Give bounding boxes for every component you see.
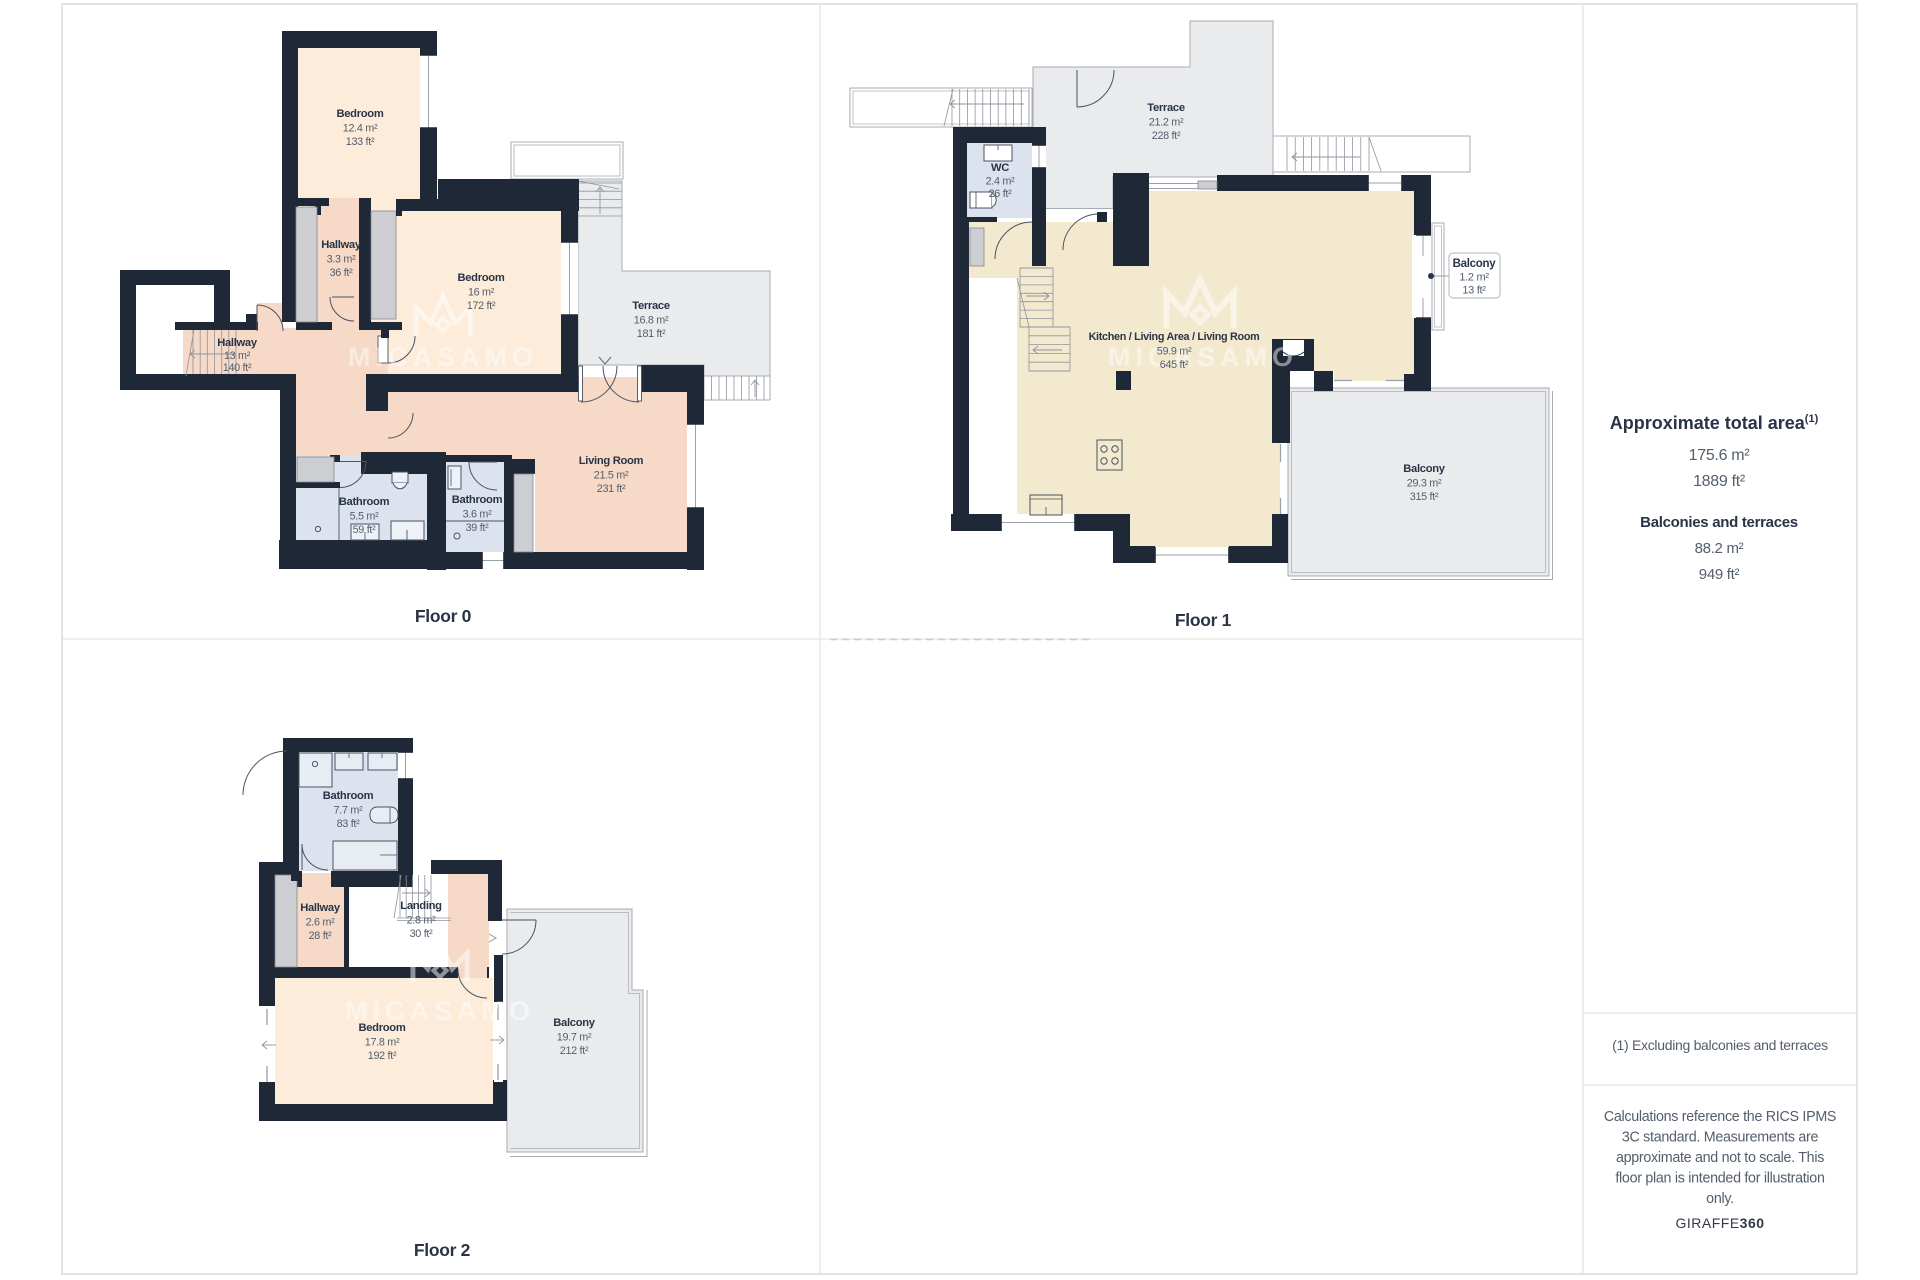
svg-text:21.2 m²: 21.2 m² (1149, 117, 1184, 129)
svg-text:Floor 2: Floor 2 (414, 1240, 471, 1260)
svg-text:Bathroom: Bathroom (323, 790, 374, 802)
svg-text:2.4 m²: 2.4 m² (986, 176, 1016, 188)
svg-text:13 m²: 13 m² (224, 350, 251, 362)
svg-text:Floor 0: Floor 0 (415, 606, 472, 626)
svg-text:13 ft²: 13 ft² (1462, 285, 1486, 297)
svg-text:212 ft²: 212 ft² (560, 1045, 589, 1057)
svg-text:59.9 m²: 59.9 m² (1157, 346, 1192, 358)
svg-text:Hallway: Hallway (300, 902, 341, 914)
svg-text:175.6 m²: 175.6 m² (1689, 447, 1751, 464)
svg-text:Terrace: Terrace (632, 300, 670, 312)
svg-text:12.4 m²: 12.4 m² (343, 123, 378, 135)
svg-text:2.8 m²: 2.8 m² (407, 915, 437, 927)
svg-text:Hallway: Hallway (217, 337, 258, 349)
svg-text:3.3 m²: 3.3 m² (327, 254, 357, 266)
svg-text:2.6 m²: 2.6 m² (306, 917, 336, 929)
svg-text:5.5 m²: 5.5 m² (350, 511, 380, 523)
svg-text:59 ft²: 59 ft² (353, 524, 377, 536)
svg-text:floor plan is intended for ill: floor plan is intended for illustration (1615, 1171, 1825, 1187)
svg-text:Balcony: Balcony (1403, 463, 1445, 475)
svg-text:Kitchen / Living Area / Living: Kitchen / Living Area / Living Room (1089, 331, 1260, 343)
svg-text:16 m²: 16 m² (468, 287, 495, 299)
svg-text:315 ft²: 315 ft² (1410, 491, 1439, 503)
svg-text:29.3 m²: 29.3 m² (1407, 478, 1442, 490)
svg-text:140 ft²: 140 ft² (223, 362, 252, 374)
svg-text:26 ft²: 26 ft² (989, 188, 1013, 200)
svg-text:MICASAMO: MICASAMO (348, 342, 538, 372)
svg-text:GIRAFFE360: GIRAFFE360 (1675, 1215, 1764, 1231)
svg-text:Living Room: Living Room (579, 455, 644, 467)
svg-text:172 ft²: 172 ft² (467, 300, 496, 312)
svg-text:approximate and not to scale.: approximate and not to scale. This (1616, 1150, 1824, 1166)
svg-text:Hallway: Hallway (321, 239, 362, 251)
svg-text:949 ft²: 949 ft² (1699, 566, 1740, 583)
svg-text:Bathroom: Bathroom (452, 494, 503, 506)
svg-text:Floor 1: Floor 1 (1175, 610, 1232, 630)
svg-text:Bedroom: Bedroom (336, 108, 383, 120)
svg-text:192 ft²: 192 ft² (368, 1050, 397, 1062)
svg-text:3.6 m²: 3.6 m² (463, 509, 493, 521)
svg-text:Bedroom: Bedroom (457, 272, 504, 284)
svg-text:645 ft²: 645 ft² (1160, 359, 1189, 371)
svg-text:Approximate total area(1): Approximate total area(1) (1610, 413, 1819, 433)
svg-text:181 ft²: 181 ft² (637, 328, 666, 340)
svg-text:MICASAMO: MICASAMO (1108, 342, 1298, 372)
svg-text:Bathroom: Bathroom (339, 496, 390, 508)
svg-text:36 ft²: 36 ft² (330, 267, 354, 279)
svg-text:Calculations reference the RIC: Calculations reference the RICS IPMS (1604, 1109, 1836, 1125)
svg-text:Bedroom: Bedroom (358, 1022, 405, 1034)
svg-text:133 ft²: 133 ft² (346, 136, 375, 148)
svg-text:WC: WC (991, 162, 1009, 174)
svg-text:39 ft²: 39 ft² (466, 522, 490, 534)
svg-text:(1) Excluding balconies and te: (1) Excluding balconies and terraces (1612, 1037, 1828, 1053)
svg-text:30 ft²: 30 ft² (410, 928, 434, 940)
svg-text:Terrace: Terrace (1147, 102, 1185, 114)
svg-text:21.5 m²: 21.5 m² (594, 470, 629, 482)
svg-text:28 ft²: 28 ft² (309, 930, 333, 942)
svg-text:88.2 m²: 88.2 m² (1695, 540, 1744, 557)
svg-text:3C standard. Measurements are: 3C standard. Measurements are (1622, 1130, 1819, 1146)
svg-text:1.2 m²: 1.2 m² (1459, 272, 1489, 284)
svg-text:228 ft²: 228 ft² (1152, 130, 1181, 142)
svg-text:231 ft²: 231 ft² (597, 483, 626, 495)
svg-text:17.8 m²: 17.8 m² (365, 1037, 400, 1049)
svg-text:83 ft²: 83 ft² (337, 818, 361, 830)
svg-text:19.7 m²: 19.7 m² (557, 1032, 592, 1044)
svg-text:only.: only. (1706, 1191, 1734, 1207)
svg-text:1889 ft²: 1889 ft² (1693, 473, 1746, 490)
svg-text:16.8 m²: 16.8 m² (634, 315, 669, 327)
svg-text:Balconies and terraces: Balconies and terraces (1640, 514, 1798, 531)
svg-text:Balcony: Balcony (553, 1017, 595, 1029)
svg-text:Balcony: Balcony (1453, 258, 1497, 270)
svg-text:7.7 m²: 7.7 m² (334, 805, 364, 817)
svg-text:Landing: Landing (400, 900, 442, 912)
